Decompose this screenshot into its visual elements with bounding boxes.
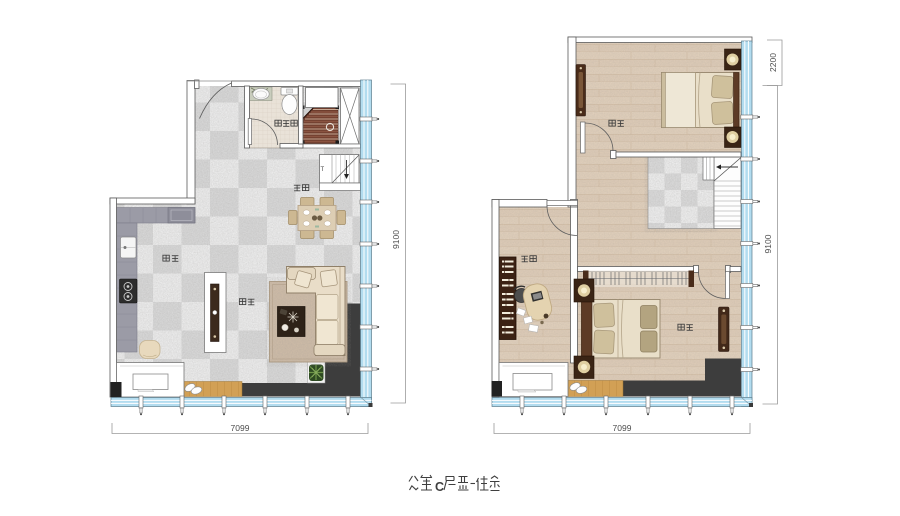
svg-text:2200: 2200 (768, 53, 778, 72)
svg-text:9100: 9100 (763, 234, 773, 253)
svg-text:9100: 9100 (391, 230, 401, 249)
svg-text:T: T (321, 167, 325, 173)
svg-text:7099: 7099 (231, 423, 250, 433)
svg-text:7099: 7099 (613, 423, 632, 433)
svg-text:C: C (435, 480, 444, 494)
